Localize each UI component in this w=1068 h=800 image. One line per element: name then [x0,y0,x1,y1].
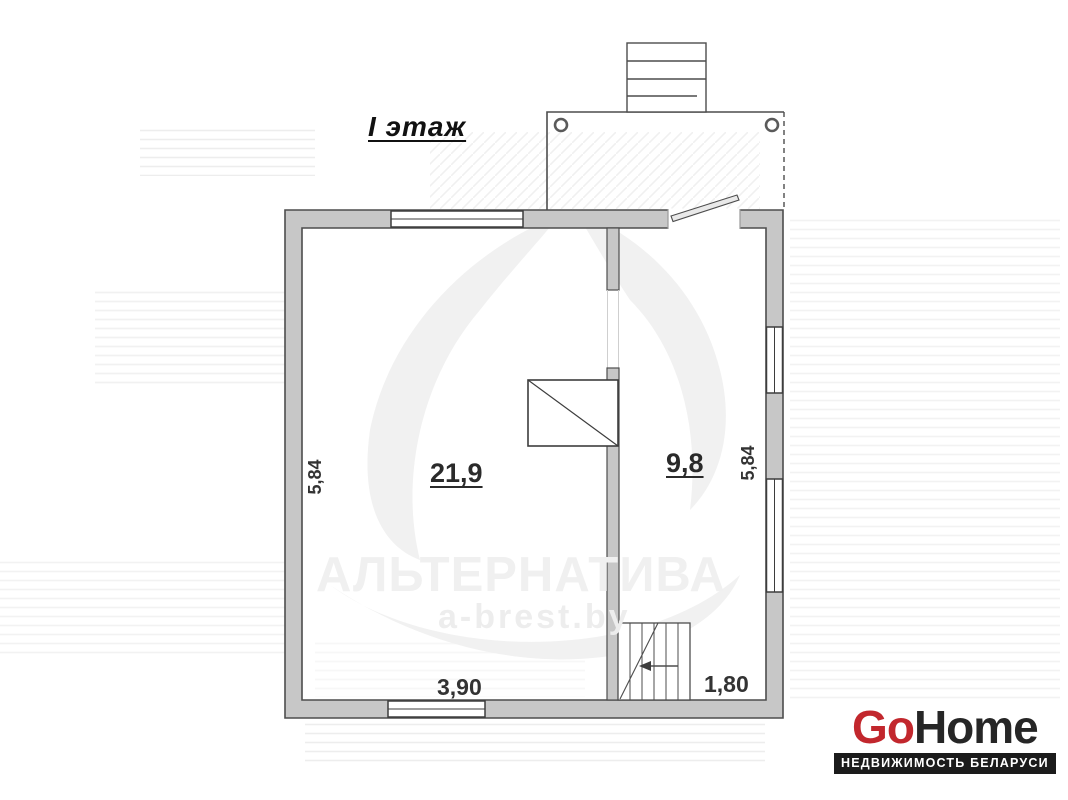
window-right-lower [767,479,783,592]
gohome-tagline-bar: НЕДВИЖИМОСТЬ БЕЛАРУСИ [834,753,1056,774]
gohome-logo-home: Home [914,701,1038,753]
dimension-left: 5,84 [305,449,325,505]
floorplan-page: I этаж АЛЬТЕРНАТИВА a-brest.by 21,9 9,8 … [0,0,1068,800]
window-bottom [388,701,485,717]
partition-wall-upper [607,228,619,290]
dimension-bottom-left: 3,90 [437,674,482,701]
watermark-website: a-brest.by [438,598,631,637]
room-large-area-label: 21,9 [430,458,483,489]
floor-title: I этаж [368,111,466,143]
window-top [391,211,523,227]
dimension-bottom-right: 1,80 [704,671,749,698]
gohome-logo-text: GoHome [852,702,1038,752]
dimension-right: 5,84 [738,435,758,491]
stove-icon [528,380,618,446]
room-small-area-label: 9,8 [666,448,704,479]
window-right-upper [767,327,783,393]
floorplan-drawing [0,0,1068,800]
partition-door-opening [608,290,619,368]
watermark-agency-name: АЛЬТЕРНАТИВА [316,547,726,603]
gohome-logo-go: Go [852,701,914,753]
porch-column-right-icon [766,119,778,131]
entrance-steps [627,43,706,112]
porch-column-left-icon [555,119,567,131]
gohome-logo: GoHome НЕДВИЖИМОСТЬ БЕЛАРУСИ [834,702,1056,774]
